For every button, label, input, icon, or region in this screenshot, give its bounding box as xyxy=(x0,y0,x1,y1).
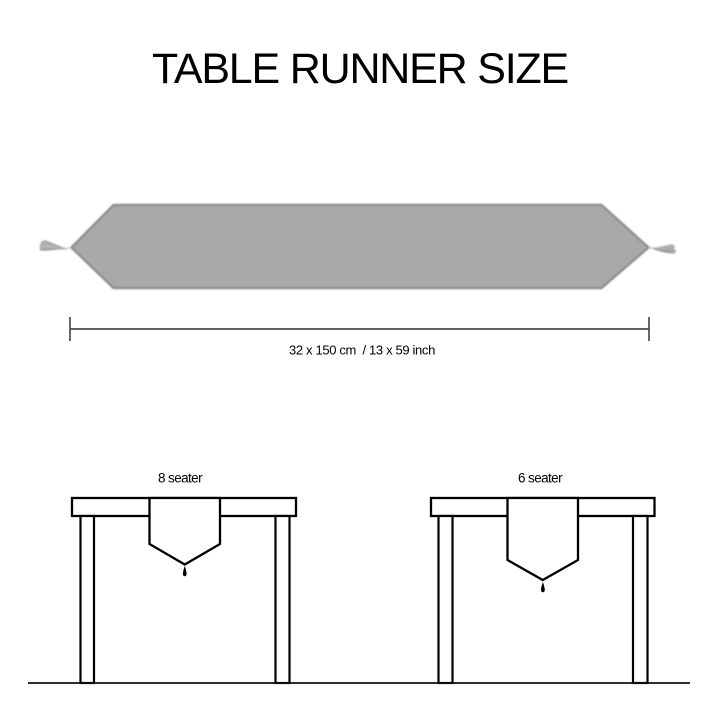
svg-text:8 seater: 8 seater xyxy=(158,470,203,485)
svg-text:32 x 150 cm / 13 x 59 inch: 32 x 150 cm / 13 x 59 inch xyxy=(289,343,435,358)
svg-text:TABLE RUNNER SIZE: TABLE RUNNER SIZE xyxy=(152,45,568,93)
svg-text:6 seater: 6 seater xyxy=(518,470,563,485)
